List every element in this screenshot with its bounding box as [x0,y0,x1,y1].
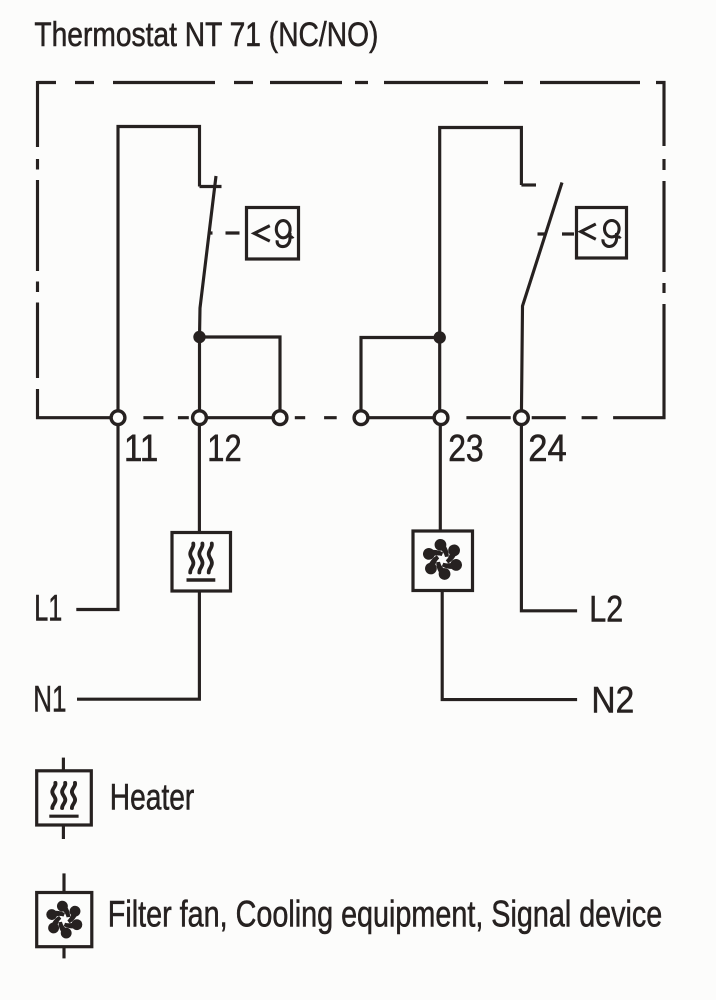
svg-text:N1: N1 [33,679,66,720]
svg-text:L1: L1 [34,587,62,628]
svg-text:Filter fan, Cooling equipment,: Filter fan, Cooling equipment, Signal de… [108,894,663,935]
svg-text:12: 12 [207,428,241,470]
svg-text:L2: L2 [589,588,623,629]
svg-text:23: 23 [448,428,484,470]
svg-text:11: 11 [124,428,158,470]
svg-text:Thermostat NT 71 (NC/NO): Thermostat NT 71 (NC/NO) [34,16,378,54]
svg-text:Heater: Heater [110,776,195,817]
svg-text:24: 24 [528,428,567,470]
svg-text:N2: N2 [591,680,634,721]
